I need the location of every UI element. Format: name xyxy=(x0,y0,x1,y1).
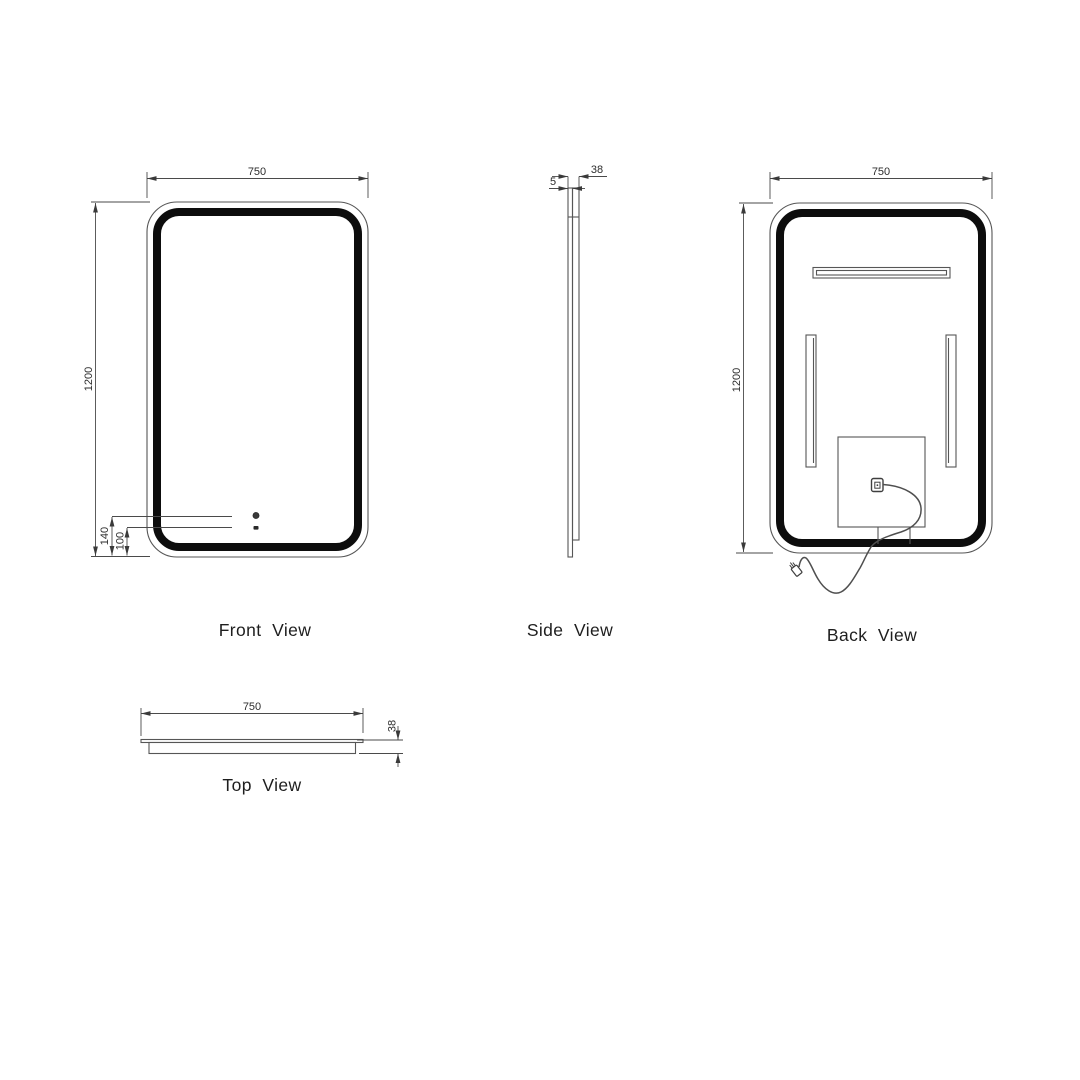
top-depth-value: 38 xyxy=(387,720,399,732)
back-view-drawing: 750 1200 xyxy=(731,166,992,593)
front-width-dimension: 750 xyxy=(147,166,368,198)
side-glass-thickness-dimension: 5 xyxy=(549,176,585,189)
top-width-value: 750 xyxy=(243,701,261,713)
front-button-offset-value: 100 xyxy=(115,532,127,550)
side-backbox-profile xyxy=(573,188,580,540)
front-height-dimension: 1200 xyxy=(83,202,150,557)
technical-drawing-sheet: 750 1200 140 100 xyxy=(0,0,1080,1080)
front-sensor-offset-value: 140 xyxy=(99,527,111,545)
side-depth-dimension: 38 xyxy=(552,164,607,190)
back-width-value: 750 xyxy=(872,166,890,178)
back-height-dimension: 1200 xyxy=(731,203,773,553)
front-view-drawing: 750 1200 140 100 xyxy=(83,166,368,557)
front-height-value: 1200 xyxy=(83,367,95,391)
back-width-dimension: 750 xyxy=(770,166,992,199)
top-body-profile xyxy=(149,743,356,754)
back-height-value: 1200 xyxy=(731,368,743,392)
mirror-dimension-drawing: 750 1200 140 100 xyxy=(0,0,1080,1080)
side-view-drawing: 38 5 xyxy=(549,164,607,557)
front-width-value: 750 xyxy=(248,166,266,178)
top-depth-dimension: 38 xyxy=(357,720,403,767)
top-width-dimension: 750 xyxy=(141,701,363,736)
side-view-label: Side View xyxy=(527,620,613,641)
side-glass-thickness-value: 5 xyxy=(550,176,556,188)
front-view-label: Front View xyxy=(219,620,312,641)
connector-socket-icon xyxy=(872,479,884,492)
side-glass-profile xyxy=(568,188,573,557)
back-view-label: Back View xyxy=(827,625,917,646)
top-view-label: Top View xyxy=(222,775,301,796)
touch-sensor-icon xyxy=(253,512,259,518)
touch-button-icon xyxy=(254,526,259,530)
front-mirror-outline xyxy=(147,202,368,557)
top-view-drawing: 750 38 xyxy=(141,701,403,767)
side-depth-value: 38 xyxy=(591,164,603,176)
